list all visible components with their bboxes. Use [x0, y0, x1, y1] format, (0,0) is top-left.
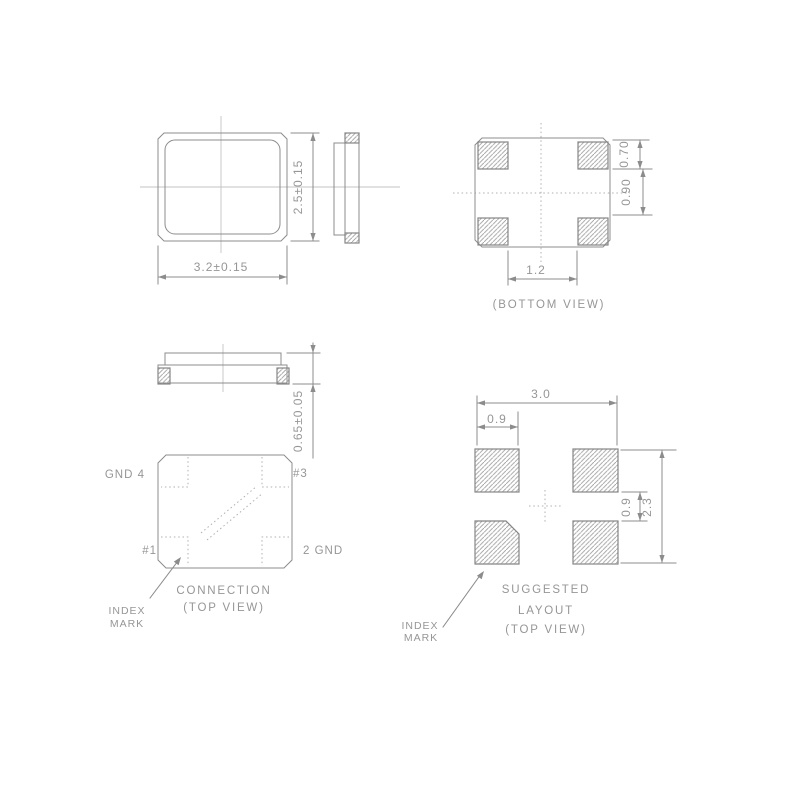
arrowhead	[158, 274, 166, 279]
lid-profile	[334, 143, 345, 235]
dim-pad-gap-label: 0.90	[619, 178, 633, 205]
hidden-pad-outline	[262, 537, 289, 566]
crystal-package-drawing: 3.2±0.15 2.5±0.15 0.70 0.90	[0, 0, 800, 800]
pin-3-label: #3	[293, 468, 308, 480]
arrowhead	[640, 207, 645, 215]
crystal-blank-hidden-line	[207, 493, 263, 540]
dim-thickness-label: 0.65±0.05	[291, 390, 305, 452]
arrowhead	[659, 555, 664, 563]
dim-width-label: 3.2±0.15	[194, 260, 249, 274]
layout-caption-subtitle: (TOP VIEW)	[505, 624, 586, 636]
arrowhead	[310, 133, 315, 141]
base-profile	[158, 365, 287, 383]
dim-layout-width-label: 3.0	[531, 387, 551, 401]
layout-pad	[475, 449, 519, 492]
dim-height-label: 2.5±0.15	[291, 160, 305, 215]
dim-pad-spacing-label: 1.2	[526, 263, 546, 277]
solder-pad-edge	[277, 368, 289, 384]
dim-pad-width-label: 0.9	[487, 412, 507, 426]
solder-pad	[478, 218, 508, 245]
suggested-layout-view: 3.0 0.9 0.9 2.3 SUGGESTED LAYOUT (TOP VI…	[401, 387, 676, 644]
layout-caption: LAYOUT	[518, 605, 574, 617]
arrowhead	[640, 169, 645, 177]
arrowhead	[310, 345, 315, 353]
layout-pad-index	[475, 521, 519, 564]
hidden-pad-outline	[161, 457, 188, 487]
body-profile	[345, 133, 359, 243]
arrowhead	[477, 400, 485, 405]
arrowhead	[310, 384, 315, 392]
connection-caption-subtitle: (TOP VIEW)	[183, 602, 264, 614]
solder-pad	[578, 142, 608, 169]
solder-pad-edge	[345, 133, 359, 143]
arrowhead	[510, 424, 518, 429]
package-outline	[158, 455, 292, 568]
index-mark-label: INDEX	[401, 620, 438, 632]
package-front-view: 0.65±0.05	[158, 343, 320, 458]
arrowhead	[310, 233, 315, 241]
solder-pad	[478, 142, 508, 169]
solder-pad-edge	[345, 233, 359, 243]
index-mark-label: MARK	[404, 632, 438, 644]
arrowhead	[637, 161, 642, 169]
package-top-view: 3.2±0.15 2.5±0.15	[140, 116, 400, 284]
arrowhead	[477, 424, 485, 429]
index-mark-label: INDEX	[108, 605, 145, 617]
pin-2-label: 2 GND	[303, 545, 343, 557]
arrowhead	[279, 274, 287, 279]
arrowhead	[174, 557, 181, 565]
layout-caption: SUGGESTED	[502, 584, 590, 596]
arrowhead	[569, 276, 577, 281]
dim-layout-height-label: 2.3	[640, 497, 654, 517]
arrowhead	[609, 400, 617, 405]
pin-4-label: GND 4	[105, 469, 145, 481]
arrowhead	[637, 140, 642, 148]
connection-view: GND 4 #3 #1 2 GND CONNECTION (TOP VIEW) …	[105, 455, 343, 630]
technical-drawing-page: 3.2±0.15 2.5±0.15 0.70 0.90	[0, 0, 800, 800]
crystal-blank-hidden-line	[201, 486, 257, 533]
bottom-view-caption: (BOTTOM VIEW)	[493, 299, 606, 311]
index-mark-label: MARK	[110, 618, 144, 630]
dim-pad-height-label: 0.70	[617, 140, 631, 167]
hidden-pad-outline	[262, 457, 289, 487]
arrowhead	[659, 450, 664, 458]
pin-1-label: #1	[142, 545, 157, 557]
solder-pad	[578, 218, 608, 245]
index-mark-leader-line	[443, 574, 481, 627]
connection-caption: CONNECTION	[176, 585, 271, 597]
bottom-view: 0.70 0.90 1.2 (BOTTOM VIEW)	[453, 123, 652, 311]
solder-pad-edge	[158, 368, 170, 384]
layout-pad	[573, 449, 618, 492]
layout-pad	[573, 521, 618, 564]
arrowhead	[508, 276, 516, 281]
dim-pad-gap-label: 0.9	[619, 497, 633, 517]
package-side-view	[334, 133, 359, 243]
